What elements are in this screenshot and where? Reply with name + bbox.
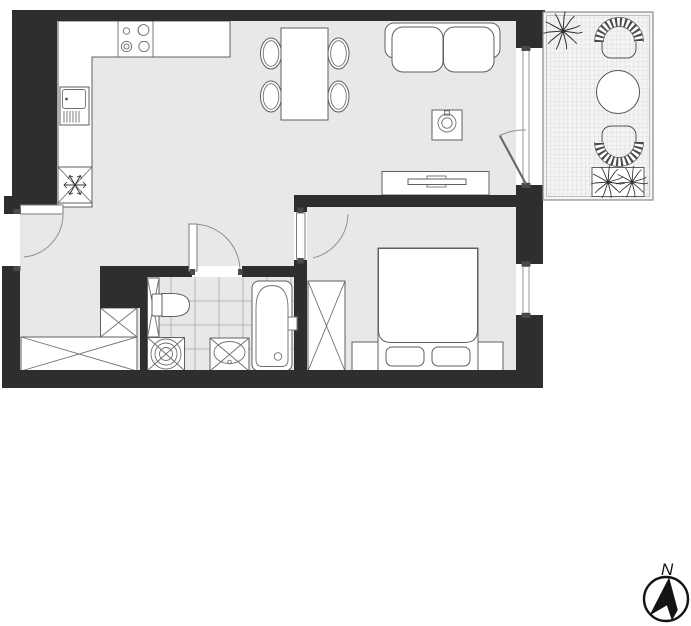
- compass-needle-icon: [650, 578, 678, 620]
- nightstand-icon: [352, 342, 378, 371]
- floor-plan-page: N: [0, 0, 691, 626]
- compass-north-label: N: [661, 560, 674, 579]
- double-bed-icon: [378, 248, 478, 371]
- tv-icon: [408, 179, 466, 185]
- nightstand-icon: [478, 342, 503, 371]
- washbasin-icon: [210, 338, 249, 371]
- floor-plan: N: [0, 0, 691, 626]
- kitchen-sink-icon: [60, 87, 89, 125]
- bathtub-icon: [252, 281, 292, 371]
- pillow-icon: [386, 347, 424, 366]
- balcony: [543, 11, 653, 200]
- bedroom-window-icon: [522, 262, 531, 319]
- tv-sideboard-icon: [382, 172, 489, 196]
- compass: N: [644, 560, 688, 621]
- coffee-table-icon: [432, 110, 462, 140]
- sofa-icon: [385, 23, 500, 72]
- towel-rail-icon: [288, 317, 297, 330]
- refrigerator-icon: [58, 167, 92, 203]
- toilet-icon: [152, 294, 190, 317]
- dining-table-icon: [281, 28, 328, 120]
- planter-icon: [591, 165, 648, 198]
- pillow-icon: [432, 347, 470, 366]
- washing-machine-icon: [148, 338, 185, 371]
- round-table-icon: [597, 71, 640, 114]
